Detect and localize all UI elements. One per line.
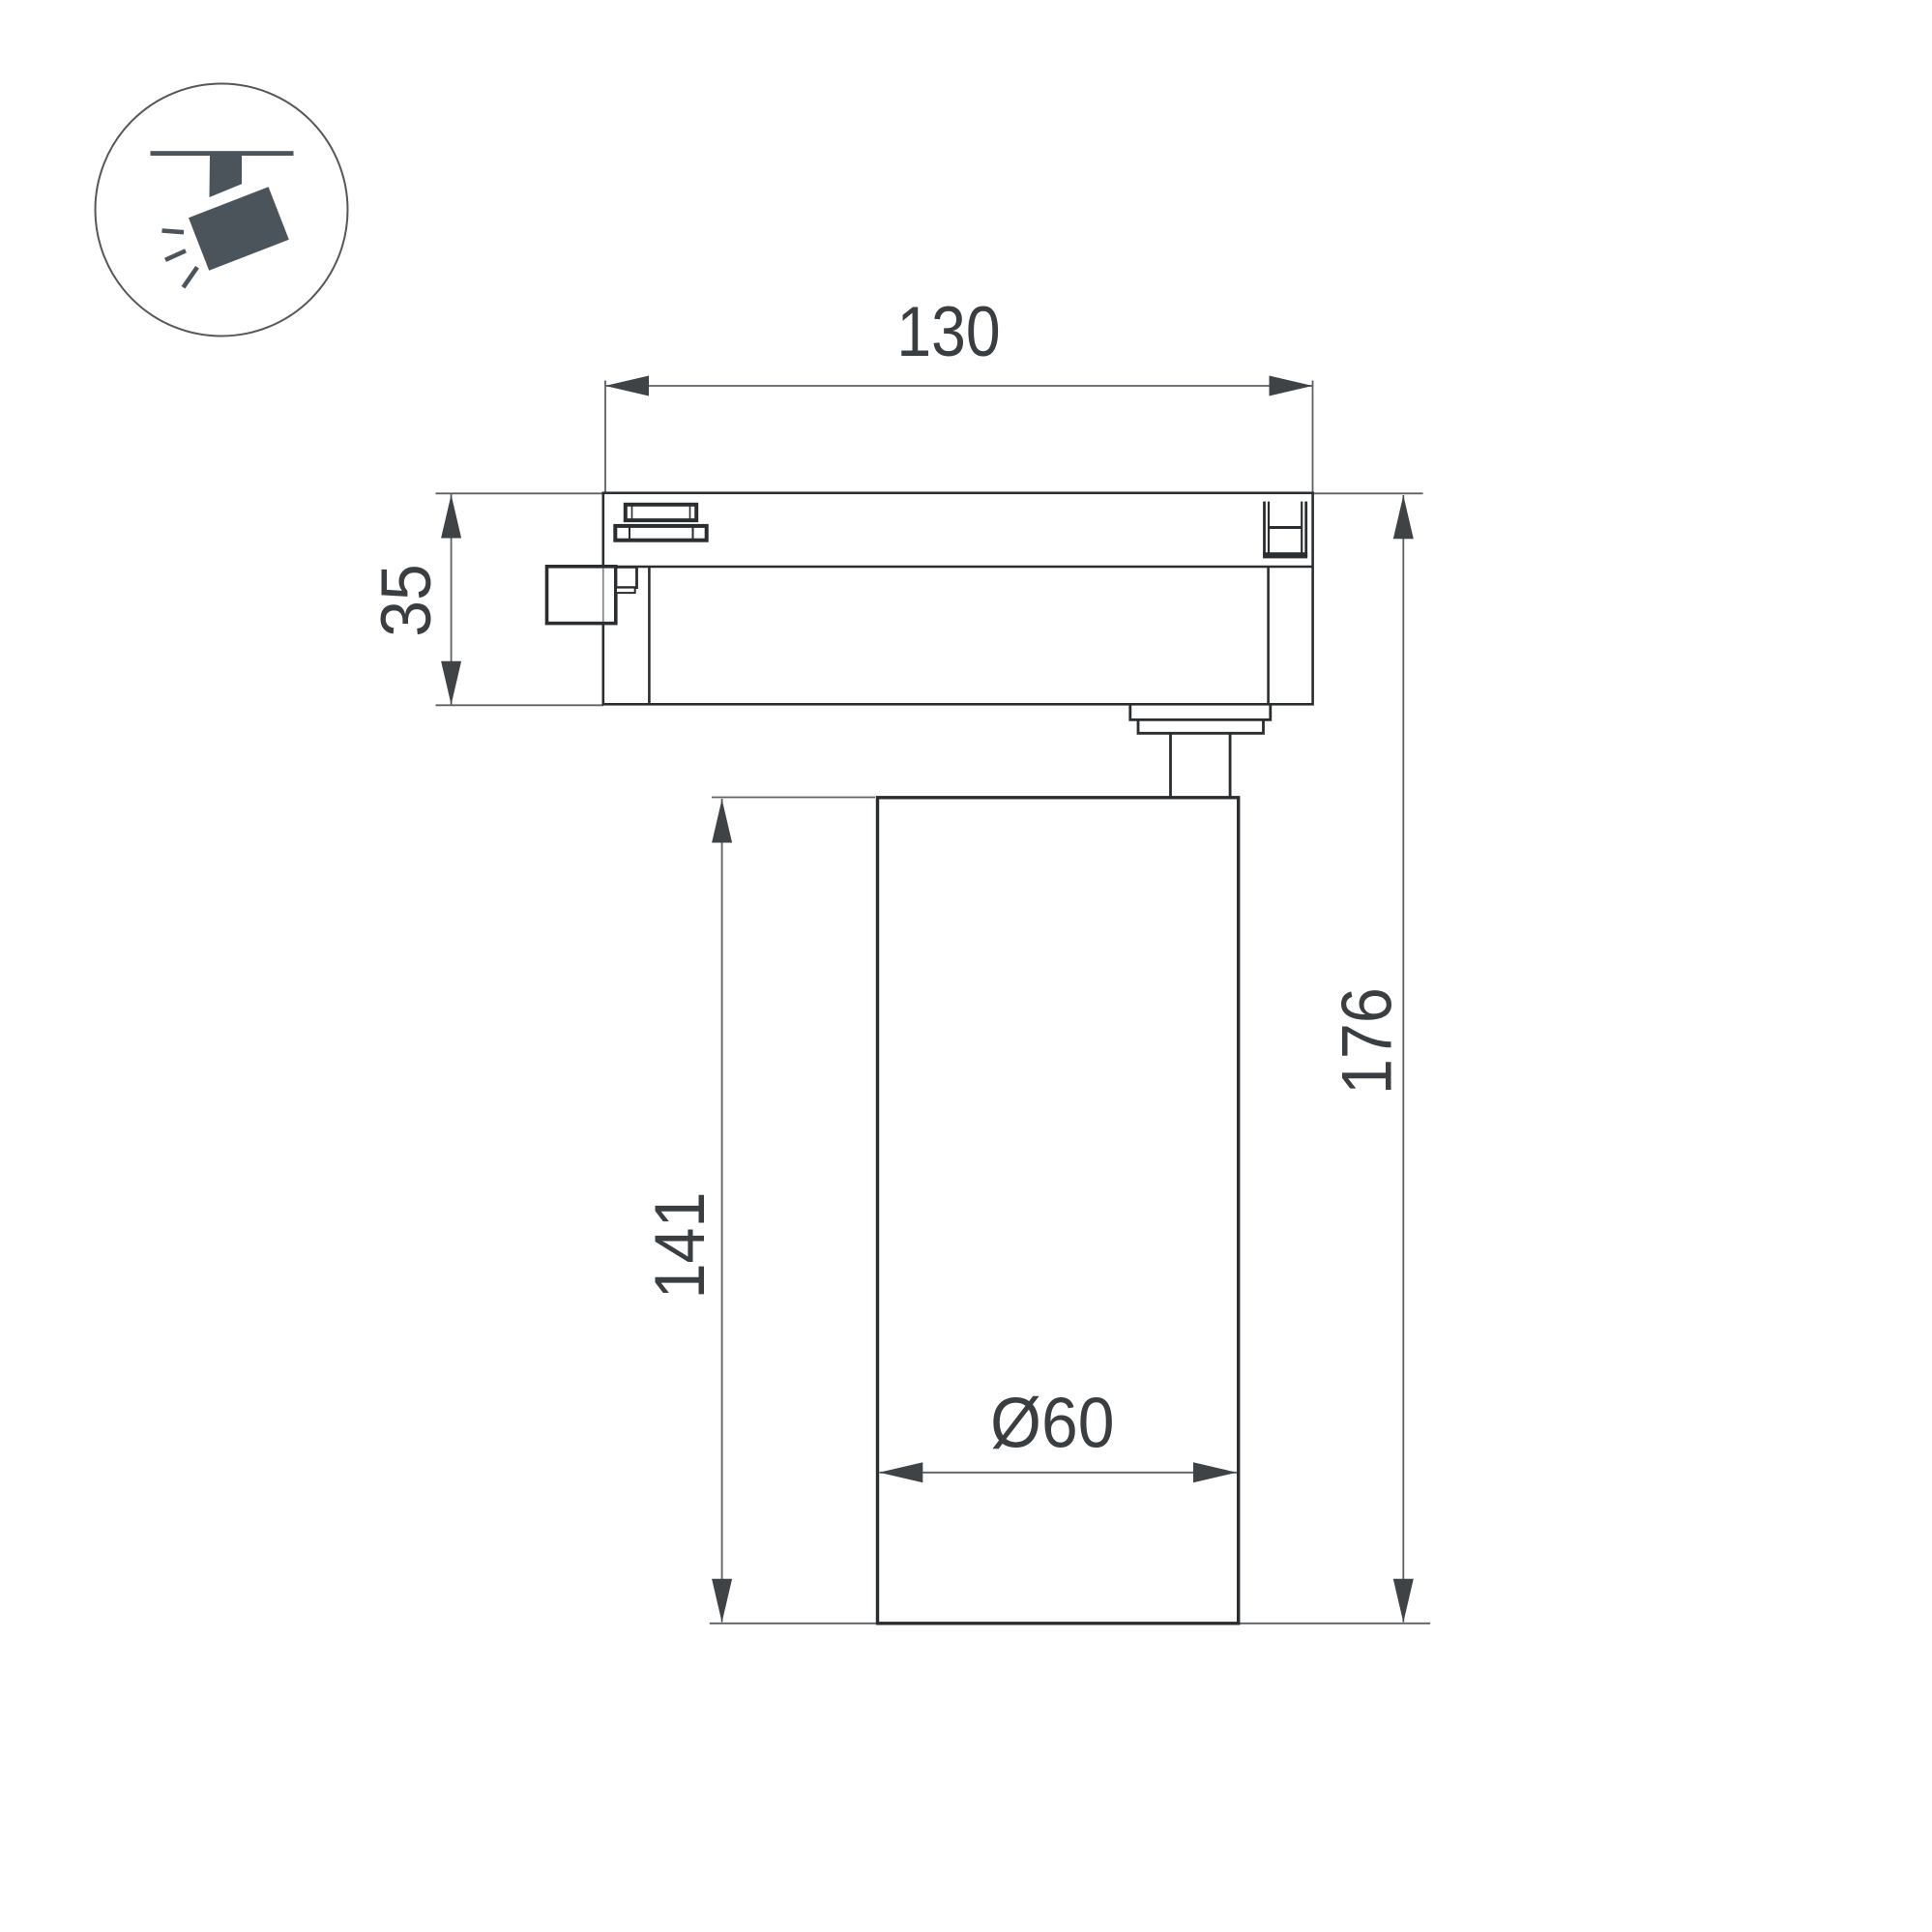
svg-text:Ø60: Ø60	[990, 1383, 1114, 1462]
svg-text:141: 141	[640, 1192, 719, 1300]
svg-text:130: 130	[896, 292, 1000, 371]
svg-text:35: 35	[366, 564, 446, 637]
svg-text:176: 176	[1328, 987, 1407, 1095]
